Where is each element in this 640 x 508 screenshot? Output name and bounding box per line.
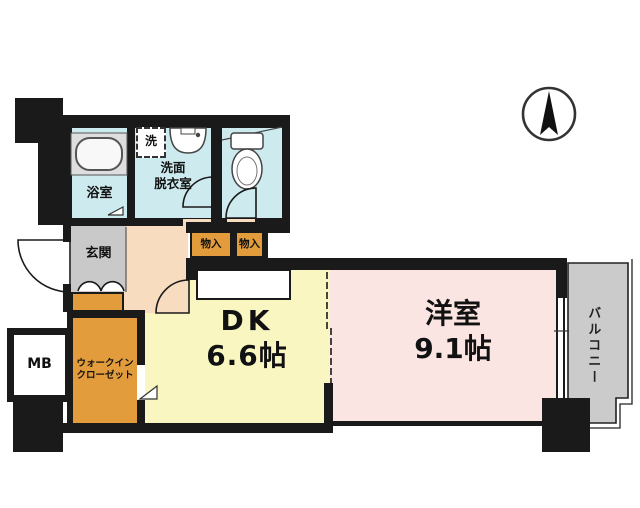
western-room-window [556,298,565,398]
toilet-floor [222,128,282,218]
western-room-size: 9.1帖 [414,332,492,365]
wall-toilet-right [282,115,290,233]
wic-door-gap [138,365,145,400]
pillar-below-mb [13,402,63,452]
balcony-label: バルコニー [584,278,600,413]
wall-bottom-main [63,423,333,433]
entrance-label: 玄関 [71,246,126,262]
corner-pillar-top-left [15,98,63,143]
washroom-label-line1: 洗面 [160,160,185,175]
dk-label: DK 6.6帖 [152,303,342,373]
wall-bath-left [63,128,72,225]
wall-slider-bottom [324,383,333,428]
wic-label-line2: クローゼット [76,370,133,381]
wic-label-line1: ウォークイン [76,358,133,369]
wall-western-right-top [556,258,567,298]
wall-entry-stub-top [63,226,71,242]
dk-size: 6.6帖 [206,339,288,372]
wall-left-arm [38,143,63,225]
pillar-bottom-right [542,398,590,452]
wall-entry-stub-bottom [63,284,71,312]
walk-in-closet-label: ウォークイン クローゼット [71,358,139,382]
hall-floor [124,226,188,313]
floor-plan: 浴室 洗 洗面 脱衣室 玄関 物入 物入 ウォークイン クローゼット MB DK… [0,0,640,508]
shoe-cabinet [71,292,124,312]
western-room-name: 洋室 [425,297,481,330]
bathroom-label: 浴室 [72,186,127,202]
wall-sanitary-top [63,115,290,128]
kitchen-counter [196,269,291,300]
wall-western-bottom [333,421,558,426]
western-room-label: 洋室 9.1帖 [350,296,556,366]
washing-machine-label: 洗 [136,134,166,149]
dk-name: DK [221,304,274,337]
washroom-label-line2: 脱衣室 [154,176,192,191]
bathroom-floor [72,128,127,218]
meter-box-label: MB [14,356,65,374]
storage-2-label: 物入 [235,238,264,251]
north-arrow-icon [523,88,575,140]
wall-kitchen-left [186,258,196,280]
storage-1-label: 物入 [190,238,232,251]
washroom-label: 洗面 脱衣室 [133,160,213,191]
